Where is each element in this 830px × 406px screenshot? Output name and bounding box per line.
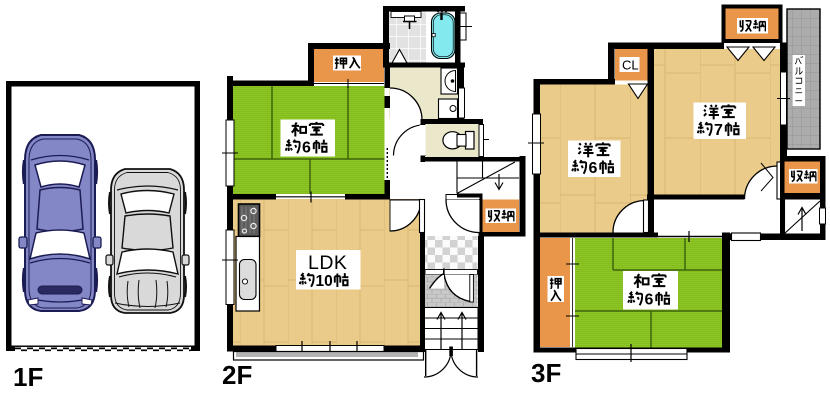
svg-text:6: 6 xyxy=(302,140,311,157)
svg-text:10: 10 xyxy=(316,273,333,290)
svg-text:1F: 1F xyxy=(13,362,43,392)
svg-text:2F: 2F xyxy=(222,360,252,390)
svg-text:3F: 3F xyxy=(531,358,561,388)
svg-text:7: 7 xyxy=(714,122,723,139)
svg-text:LDK: LDK xyxy=(308,252,347,274)
svg-text:CL: CL xyxy=(622,58,639,73)
svg-text:6: 6 xyxy=(645,292,654,309)
svg-text:6: 6 xyxy=(589,160,598,177)
